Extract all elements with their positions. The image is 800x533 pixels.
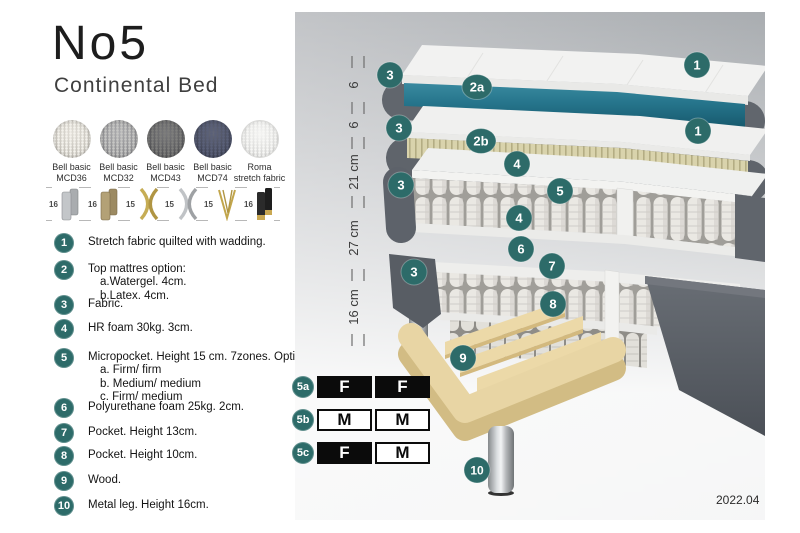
badge-latex: 2b	[466, 129, 496, 154]
firmness-cell: F	[317, 442, 372, 464]
badge-fabric-1: 3	[377, 62, 403, 88]
dim-topper: 6	[346, 81, 361, 88]
dim-base: 27 cm	[346, 220, 361, 255]
legend-text: Wood.	[88, 471, 121, 487]
svg-text:3: 3	[386, 68, 393, 83]
dim-micropocket: 21 cm	[346, 154, 361, 189]
firmness-cell: F	[317, 376, 372, 398]
badge-micropocket: 5	[547, 178, 573, 204]
legend-text: Polyurethane foam 25kg. 2cm.	[88, 398, 244, 414]
badge-metal-leg: 10	[464, 457, 490, 483]
svg-text:6: 6	[517, 242, 524, 257]
legend-text: HR foam 30kg. 3cm.	[88, 319, 193, 335]
legend-subtext: a.Watergel. 4cm.	[100, 276, 187, 290]
fabric-swatch-roma: Romastretch fabric	[238, 120, 281, 184]
dimension-labels: 6 6 21 cm 27 cm 16 cm	[346, 81, 361, 324]
front-metal-leg	[488, 426, 514, 493]
twisted-leg-gold-icon	[137, 187, 161, 221]
leg-option-silver-twisted: 15	[163, 184, 202, 224]
leg-height-label: 16	[49, 200, 58, 209]
legend-subtext: a. Firm/ firm	[100, 364, 311, 378]
dim-latex: 6	[346, 121, 361, 128]
svg-text:1: 1	[693, 58, 700, 73]
badge-watergel: 2a	[462, 75, 492, 100]
fabric-swatch-mcd74: Bell basicMCD74	[191, 120, 234, 184]
product-title: No5	[52, 16, 149, 71]
swatch-label: Bell basic	[52, 162, 91, 173]
legend-number-badge: 10	[54, 496, 74, 516]
svg-text:7: 7	[548, 259, 555, 274]
badge-wood: 9	[450, 345, 476, 371]
fabric-swatch-icon	[147, 120, 185, 158]
twisted-leg-silver-icon	[176, 187, 200, 221]
badge-fabric-3: 3	[388, 172, 414, 198]
svg-text:3: 3	[395, 121, 402, 136]
badge-fabric-4: 3	[401, 259, 427, 285]
legend-item-10: 10 Metal leg. Height 16cm.	[54, 496, 209, 516]
firmness-cell: F	[375, 376, 430, 398]
layer-base	[389, 254, 765, 496]
fabric-swatch-icon	[100, 120, 138, 158]
hairpin-leg-icon	[215, 187, 239, 221]
cylinder-leg-bronze-icon	[99, 187, 121, 221]
fabric-swatch-mcd36: Bell basicMCD36	[50, 120, 93, 184]
legend-item-7: 7 Pocket. Height 13cm.	[54, 423, 197, 443]
badge-stretch-2: 1	[685, 118, 711, 144]
base-fabric-side	[645, 276, 765, 436]
version-label: 2022.04	[716, 493, 759, 507]
legend-text: Micropocket. Height 15 cm. 7zones. Optio…	[88, 351, 311, 364]
legend-number-badge: 8	[54, 446, 74, 466]
svg-text:4: 4	[515, 211, 523, 226]
fabric-swatches: Bell basicMCD36 Bell basicMCD32 Bell bas…	[50, 120, 281, 184]
legend-item-5: 5 Micropocket. Height 15 cm. 7zones. Opt…	[54, 348, 311, 405]
svg-text:5: 5	[556, 184, 563, 199]
leg-option-bronze-cylinder: 16	[85, 184, 124, 224]
legend-item-8: 8 Pocket. Height 10cm.	[54, 446, 197, 466]
legend-text: Fabric.	[88, 295, 123, 311]
legend-number-badge: 6	[54, 398, 74, 418]
firmness-cell: M	[375, 409, 430, 431]
firmness-row-badge: 5b	[292, 409, 314, 431]
dim-leg: 16 cm	[346, 289, 361, 324]
badge-polyfoam: 6	[508, 236, 534, 262]
svg-text:2a: 2a	[470, 80, 485, 95]
legend-number-badge: 5	[54, 348, 74, 368]
fabric-swatch-icon	[53, 120, 91, 158]
fabric-swatch-icon	[194, 120, 232, 158]
cylinder-leg-silver-icon	[60, 187, 82, 221]
svg-text:2b: 2b	[473, 134, 488, 149]
badge-hrfoam-2: 4	[506, 205, 532, 231]
swatch-label: Bell basic	[146, 162, 185, 173]
firmness-row-badge: 5a	[292, 376, 314, 398]
cylinder-leg-black-icon	[255, 187, 277, 221]
leg-height-label: 16	[244, 200, 253, 209]
firmness-row-badge: 5c	[292, 442, 314, 464]
legend-item-1: 1 Stretch fabric quilted with wadding.	[54, 233, 266, 253]
leg-options: 16 16 15 15	[46, 184, 280, 224]
legend-number-badge: 2	[54, 260, 74, 280]
svg-text:9: 9	[459, 351, 466, 366]
svg-text:4: 4	[513, 157, 521, 172]
leg-option-black-gold-tip: 16	[241, 184, 280, 224]
product-spec-sheet: No5 Continental Bed Bell basicMCD36 Bell…	[0, 0, 800, 533]
badge-fabric-2: 3	[386, 115, 412, 141]
svg-text:8: 8	[549, 297, 556, 312]
badge-stretch-1: 1	[684, 52, 710, 78]
firmness-cell: M	[375, 442, 430, 464]
legend-number-badge: 7	[54, 423, 74, 443]
legend-text: Metal leg. Height 16cm.	[88, 496, 209, 512]
swatch-label: Bell basic	[99, 162, 138, 173]
svg-text:10: 10	[470, 464, 484, 478]
leg-option-silver-cylinder: 16	[46, 184, 85, 224]
leg-height-label: 15	[165, 200, 174, 209]
svg-text:1: 1	[694, 124, 701, 139]
badge-pocket-13: 7	[539, 253, 565, 279]
fabric-swatch-icon	[241, 120, 279, 158]
fabric-swatch-mcd43: Bell basicMCD43	[144, 120, 187, 184]
swatch-label: Roma	[234, 162, 286, 173]
firmness-cell: M	[317, 409, 372, 431]
legend-text: Stretch fabric quilted with wadding.	[88, 233, 266, 249]
svg-text:3: 3	[397, 178, 404, 193]
legend-text: Pocket. Height 13cm.	[88, 423, 197, 439]
legend-item-3: 3 Fabric.	[54, 295, 123, 315]
legend-text: Top mattres option:	[88, 263, 187, 276]
leg-option-hairpin: 15	[202, 184, 241, 224]
firmness-row-5a: 5a F F	[292, 376, 430, 398]
legend-number-badge: 9	[54, 471, 74, 491]
legend-item-9: 9 Wood.	[54, 471, 121, 491]
legend-subtext: b. Medium/ medium	[100, 378, 311, 392]
product-subtitle: Continental Bed	[54, 74, 218, 98]
legend-item-4: 4 HR foam 30kg. 3cm.	[54, 319, 193, 339]
leg-height-label: 15	[126, 200, 135, 209]
fabric-swatch-mcd32: Bell basicMCD32	[97, 120, 140, 184]
swatch-label: Bell basic	[193, 162, 232, 173]
legend-text: Pocket. Height 10cm.	[88, 446, 197, 462]
legend-item-6: 6 Polyurethane foam 25kg. 2cm.	[54, 398, 244, 418]
badge-hrfoam-1: 4	[504, 151, 530, 177]
leg-height-label: 16	[88, 200, 97, 209]
legend-number-badge: 4	[54, 319, 74, 339]
badge-pocket-10: 8	[540, 291, 566, 317]
leg-height-label: 15	[204, 200, 213, 209]
firmness-row-5b: 5b M M	[292, 409, 430, 431]
firmness-row-5c: 5c F M	[292, 442, 430, 464]
legend-number-badge: 1	[54, 233, 74, 253]
leg-option-gold-twisted: 15	[124, 184, 163, 224]
legend-number-badge: 3	[54, 295, 74, 315]
svg-text:3: 3	[410, 265, 417, 280]
